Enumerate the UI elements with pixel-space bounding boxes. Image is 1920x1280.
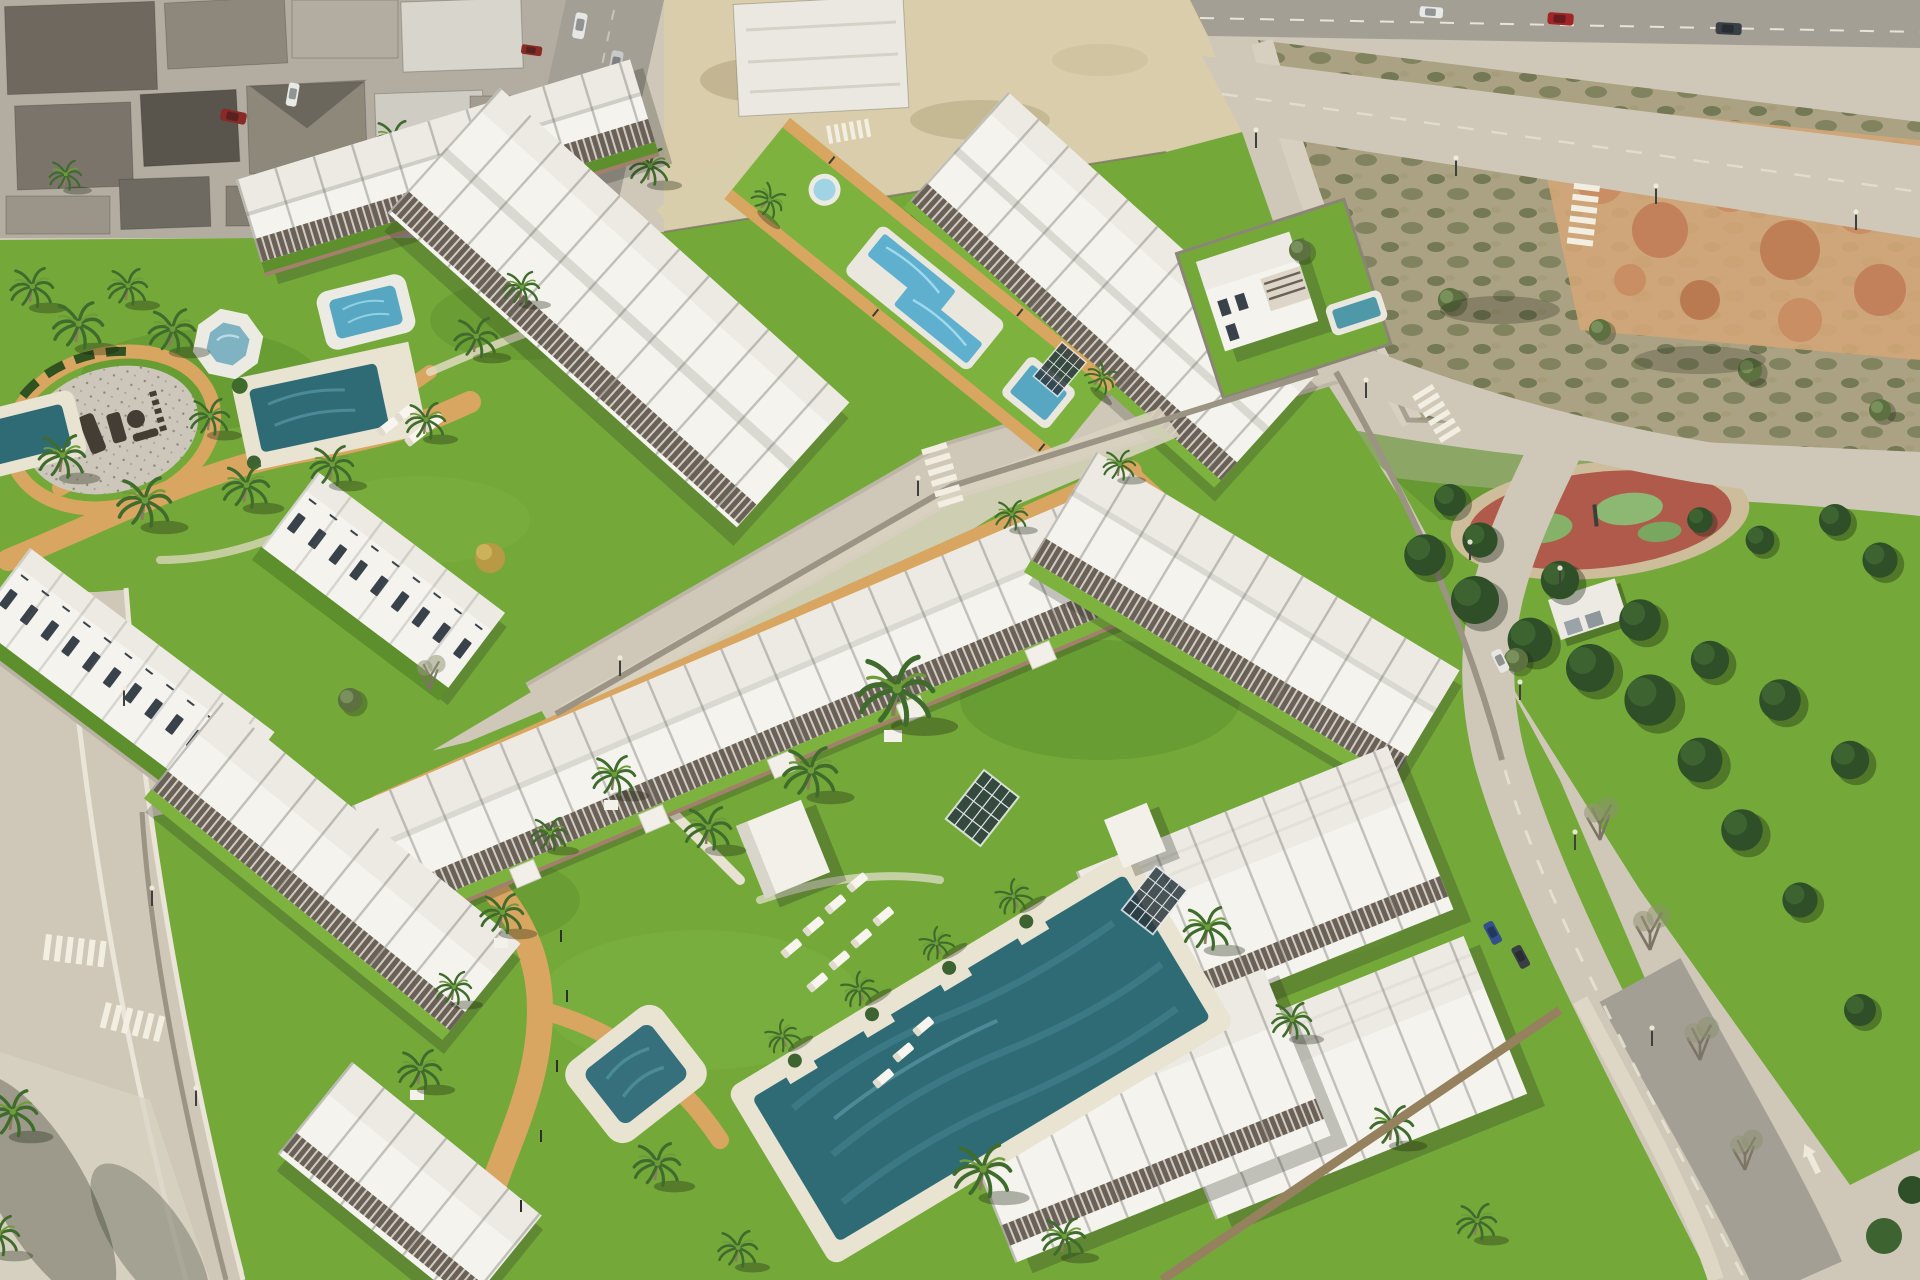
aerial-render-development xyxy=(0,0,1920,1280)
corner-bush xyxy=(1866,1218,1902,1254)
